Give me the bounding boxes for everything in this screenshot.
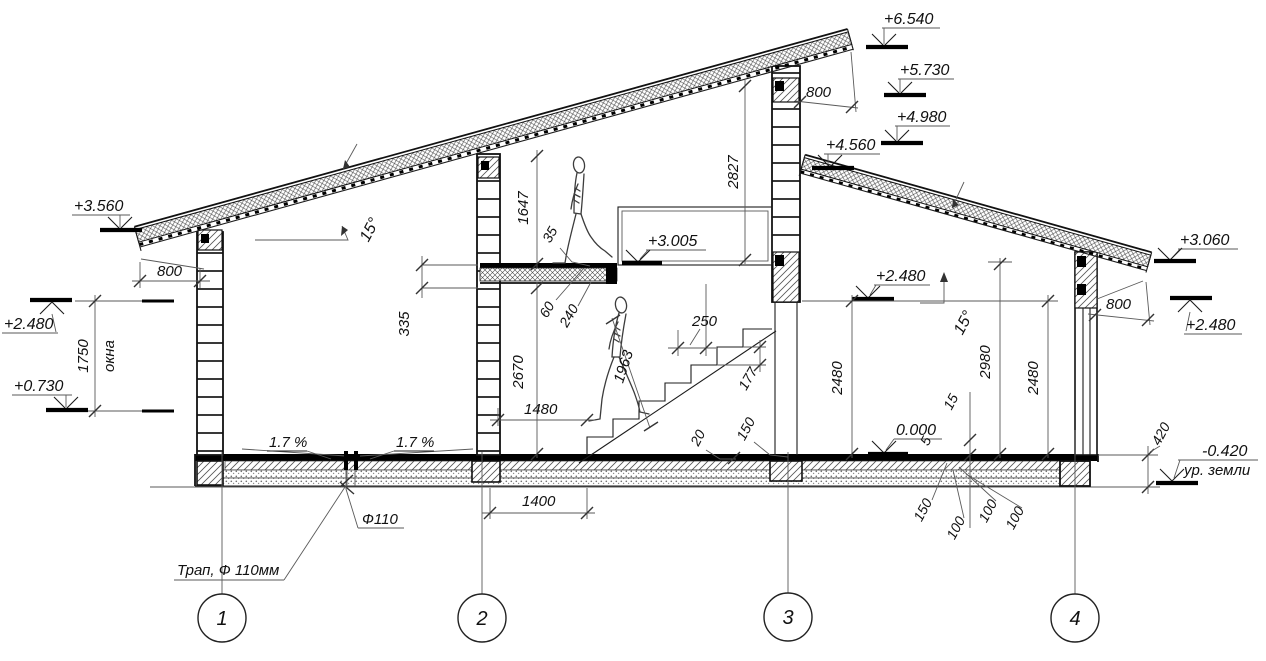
axis-1-label: 1 — [216, 608, 227, 630]
svg-text:800: 800 — [1106, 296, 1132, 313]
svg-text:+2.480: +2.480 — [1186, 317, 1235, 334]
svg-text:420: 420 — [1148, 419, 1173, 447]
svg-text:35: 35 — [539, 224, 561, 246]
wall-axis-1 — [197, 230, 223, 455]
ground-level-label: ур. земли — [1183, 462, 1251, 479]
wall-axis-2 — [477, 154, 500, 455]
svg-text:1647: 1647 — [515, 191, 532, 225]
roof-slope-15-right: 15° — [920, 272, 977, 338]
svg-text:1750: 1750 — [75, 339, 92, 373]
elevation-marker-6540: +6.540 — [866, 11, 940, 47]
svg-text:335: 335 — [396, 311, 413, 337]
svg-text:2670: 2670 — [510, 355, 527, 390]
svg-text:+3.560: +3.560 — [74, 198, 123, 215]
svg-text:+2.480: +2.480 — [876, 268, 925, 285]
svg-text:800: 800 — [157, 263, 183, 280]
svg-text:250: 250 — [691, 313, 718, 330]
floor-slab — [195, 449, 1098, 486]
svg-text:1480: 1480 — [524, 401, 558, 418]
svg-text:2480: 2480 — [1025, 361, 1042, 396]
dim-tread-250: 250 — [668, 284, 718, 356]
svg-text:+5.730: +5.730 — [900, 62, 949, 79]
svg-text:+0.730: +0.730 — [14, 378, 63, 395]
svg-text:+6.540: +6.540 — [884, 11, 933, 28]
elevation-marker-2480-room: +2.480 — [852, 268, 930, 299]
dim-room-2480-left: 2480 — [829, 295, 858, 460]
dim-attic-height: 1647 — [515, 150, 543, 270]
walking-figure-upper — [553, 156, 612, 263]
window-word-label: окна — [101, 340, 118, 372]
building-section-drawing: 1 2 3 4 +6.540 +5.730 +4.980 +4.560 +3.5… — [0, 0, 1266, 661]
drain-callout-trap: Трап, Ф 110мм — [174, 487, 345, 580]
axis-2-label: 2 — [475, 608, 487, 630]
axis-4-label: 4 — [1069, 608, 1080, 630]
dim-stair-1480: 1480 — [490, 401, 595, 426]
svg-text:15°: 15° — [357, 215, 384, 245]
svg-text:Ф110: Ф110 — [362, 511, 398, 528]
dim-wall3-height: 2827 — [725, 80, 751, 266]
svg-text:+3.005: +3.005 — [648, 233, 697, 250]
svg-text:20: 20 — [686, 427, 708, 449]
svg-text:800: 800 — [806, 84, 832, 101]
dim-overhang-right: 800 — [1088, 282, 1154, 326]
elevation-marker-3060: +3.060 — [1154, 232, 1238, 261]
section-drawing-page: 1 2 3 4 +6.540 +5.730 +4.980 +4.560 +3.5… — [0, 0, 1266, 661]
svg-text:2980: 2980 — [977, 345, 994, 380]
right-room-level-line — [802, 262, 1058, 301]
dim-slab-335: 335 — [396, 256, 478, 337]
svg-text:1.7 %: 1.7 % — [269, 434, 307, 451]
svg-text:15°: 15° — [951, 308, 978, 338]
elevation-marker-3005: +3.005 — [622, 233, 706, 263]
wall-axis-4 — [1075, 252, 1097, 455]
dim-room-2980: 2980 — [977, 258, 1006, 460]
svg-text:100: 100 — [1002, 503, 1027, 531]
dim-1400: 1400 — [482, 488, 595, 519]
svg-text:Трап, Ф 110мм: Трап, Ф 110мм — [177, 562, 279, 579]
svg-text:0.000: 0.000 — [896, 422, 936, 439]
svg-text:240: 240 — [555, 301, 581, 330]
dim-window-height: 1750 окна — [75, 295, 118, 417]
svg-text:1400: 1400 — [522, 493, 556, 510]
svg-text:2827: 2827 — [725, 155, 742, 190]
roof-lower — [799, 155, 1151, 274]
svg-text:15: 15 — [940, 391, 962, 412]
svg-text:1.7 %: 1.7 % — [396, 434, 434, 451]
axis-3-label: 3 — [782, 607, 793, 629]
svg-text:100: 100 — [943, 513, 968, 541]
elevation-marker-minus-0420: -0.420 ур. земли — [1156, 443, 1258, 483]
elevation-marker-0730: +0.730 — [12, 378, 88, 410]
svg-text:150: 150 — [910, 495, 935, 523]
dim-35: 35 — [539, 224, 590, 266]
elevation-marker-2480-right: +2.480 — [1170, 298, 1242, 334]
roof-slope-15-left: 15° — [255, 215, 383, 245]
svg-text:+4.980: +4.980 — [897, 109, 946, 126]
wall-axis-3 — [772, 66, 800, 455]
dim-room-2480-right: 2480 — [1025, 295, 1054, 460]
landing-slab — [480, 263, 617, 284]
elevation-marker-5730: +5.730 — [884, 62, 954, 95]
svg-text:+4.560: +4.560 — [826, 137, 875, 154]
svg-text:60: 60 — [536, 299, 558, 321]
svg-text:-0.420: -0.420 — [1202, 443, 1247, 460]
dim-overhang-ridge: 800 — [794, 52, 858, 113]
elevation-marker-3560: +3.560 — [72, 198, 142, 230]
dim-riser-177: 177 — [717, 340, 766, 393]
elevation-marker-4980: +4.980 — [881, 109, 950, 143]
elevation-marker-2480-left: +2.480 — [2, 300, 72, 333]
svg-text:2480: 2480 — [829, 361, 846, 396]
svg-text:+2.480: +2.480 — [4, 316, 53, 333]
elevation-marker-0000: 0.000 — [868, 422, 942, 454]
svg-text:150: 150 — [733, 414, 758, 442]
svg-text:100: 100 — [975, 496, 1000, 524]
svg-text:+3.060: +3.060 — [1180, 232, 1229, 249]
